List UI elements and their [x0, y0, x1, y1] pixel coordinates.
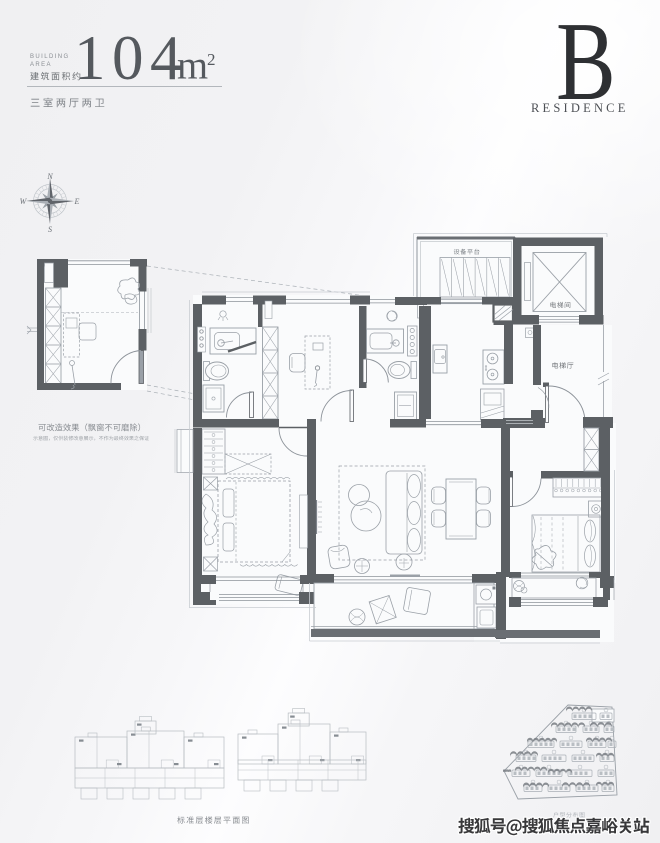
svg-text:m: m [177, 43, 208, 88]
svg-text:N: N [46, 172, 53, 181]
svg-text:AREA: AREA [30, 62, 52, 68]
svg-text:104: 104 [74, 23, 188, 93]
svg-text:E: E [74, 197, 80, 206]
svg-text:RESIDENCE: RESIDENCE [531, 101, 629, 115]
svg-text:W: W [20, 197, 28, 206]
svg-text:BUILDING: BUILDING [30, 54, 70, 60]
svg-text:S: S [48, 225, 52, 234]
svg-text:2: 2 [207, 50, 216, 69]
